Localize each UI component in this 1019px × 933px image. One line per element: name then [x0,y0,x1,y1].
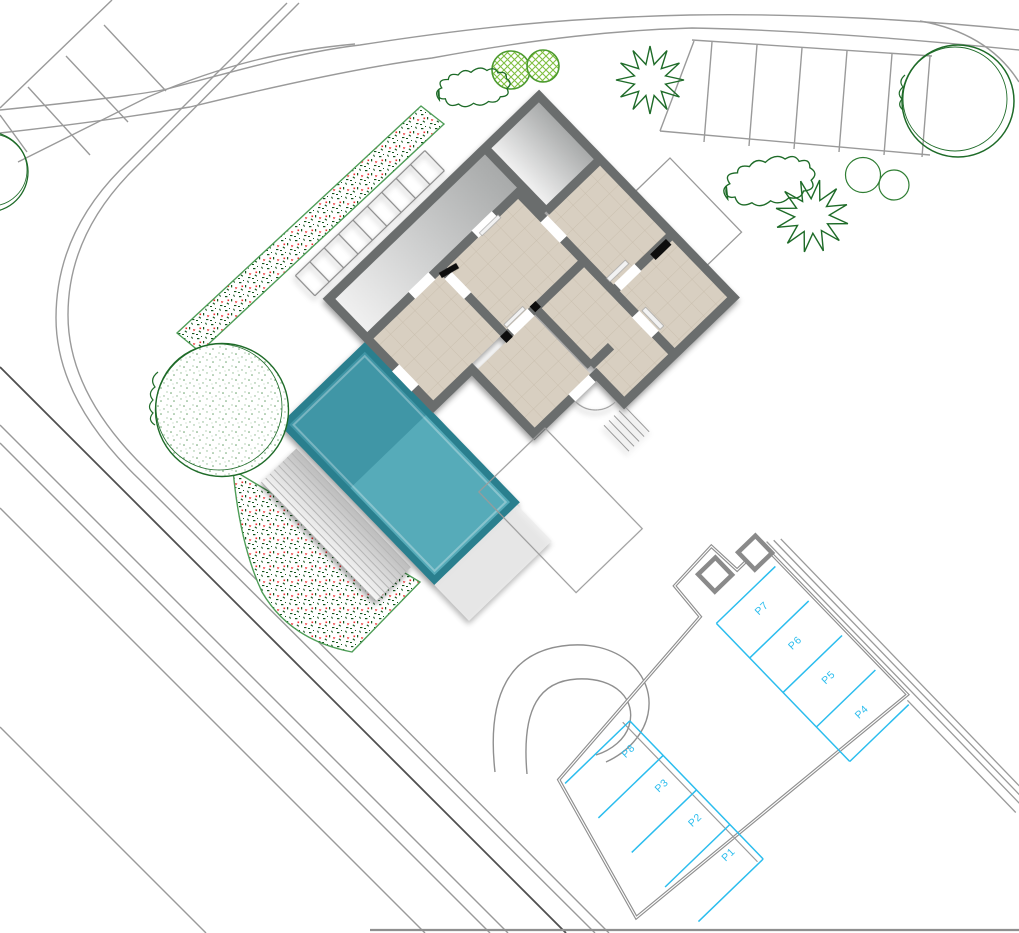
parking-stall-label: P2 [686,811,704,829]
parking-stall-label: P4 [853,703,871,721]
stall-top-edge [692,40,932,56]
stall-divider [884,54,892,155]
spiky-bush [616,46,684,114]
stall-divider [28,87,90,155]
shrub-outline [435,67,511,109]
road-diagonal [0,727,206,933]
site-plan: P7 P6 P5 P4 P8 P3 P2 P1 [0,0,1019,933]
parking-lot-outline-inner [487,520,908,933]
stall-divider [66,56,128,122]
parking-lot-outline [487,520,908,933]
parking-stall-label: P7 [753,599,771,617]
stall-markings [558,566,916,921]
stall-divider [839,51,847,152]
parking-stall-label: P3 [653,777,671,795]
hedge-circle [492,51,530,89]
stall-divider [104,25,166,91]
site-plan-canvas: P7 P6 P5 P4 P8 P3 P2 P1 [0,0,1019,933]
stall-back-line [0,0,112,108]
road-centerline-dark [0,367,566,933]
tree-large-right [899,45,1014,157]
top-right-parking [660,40,932,157]
tree-large-left [150,344,289,477]
retaining-wall-lines [760,533,1019,812]
parking-stall-label: P6 [786,634,804,652]
stall-divider [704,42,712,142]
shrub-circle [879,170,909,200]
stall-divider [794,48,802,149]
spiky-bush [768,172,855,259]
hedge-circle [527,50,559,82]
parking-lot: P7 P6 P5 P4 P8 P3 P2 P1 [487,508,1019,933]
tree-partial-left-edge [0,132,28,212]
parking-stall-label: P5 [819,668,837,686]
parking-stall-label: P8 [619,742,637,760]
stall-divider [0,115,27,152]
stall-divider [698,859,763,922]
shrub-circle [846,158,881,193]
stall-divider [749,45,757,146]
